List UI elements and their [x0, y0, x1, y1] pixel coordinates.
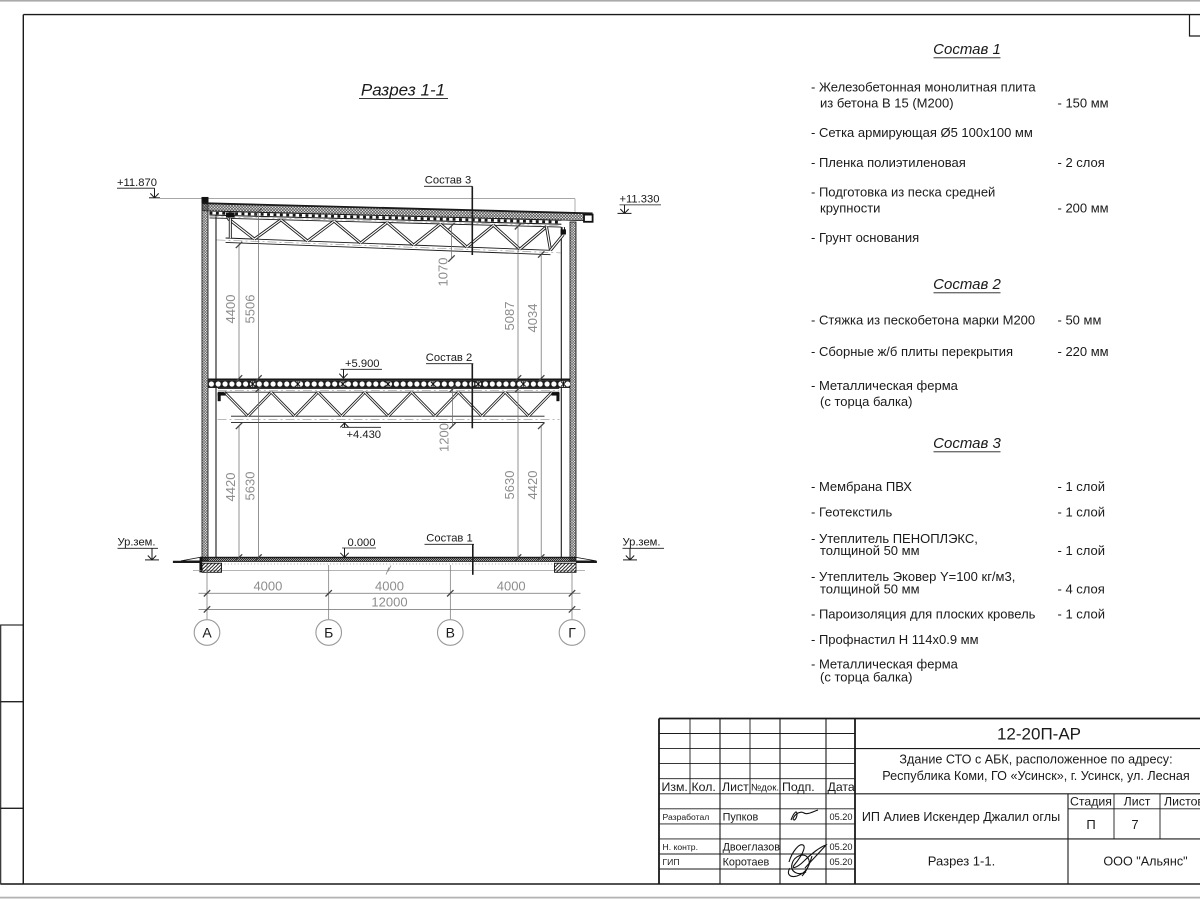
svg-text:Б: Б: [324, 625, 333, 641]
svg-text:Дата: Дата: [828, 780, 855, 794]
svg-text:Состав 3: Состав 3: [933, 435, 1001, 452]
svg-text:+11.330: +11.330: [620, 193, 660, 205]
svg-text:Состав 2: Состав 2: [426, 352, 472, 364]
svg-text:- Металлическая ферма: - Металлическая ферма: [811, 378, 959, 393]
svg-text:(с торца балка): (с торца балка): [820, 394, 913, 409]
svg-text:Состав 3: Состав 3: [425, 175, 471, 187]
svg-text:В: В: [446, 625, 455, 641]
svg-text:- 150 мм: - 150 мм: [1058, 95, 1109, 110]
svg-text:- Мембрана ПВХ: - Мембрана ПВХ: [811, 479, 912, 494]
svg-text:- Подготовка из песка средней: - Подготовка из песка средней: [811, 185, 995, 200]
svg-text:4000: 4000: [253, 579, 282, 594]
svg-text:Н. контр.: Н. контр.: [663, 842, 698, 852]
svg-text:- 4 слоя: - 4 слоя: [1058, 581, 1105, 596]
svg-text:Лист: Лист: [1124, 795, 1151, 809]
svg-text:5506: 5506: [243, 295, 258, 324]
svg-text:- 220 мм: - 220 мм: [1058, 344, 1109, 359]
svg-text:4034: 4034: [525, 304, 540, 333]
svg-text:Стадия: Стадия: [1070, 795, 1112, 809]
svg-text:Изм.: Изм.: [662, 780, 688, 794]
svg-text:0.000: 0.000: [348, 537, 376, 549]
svg-text:- Пароизоляция для плоских кро: - Пароизоляция для плоских кровель: [811, 606, 1036, 621]
svg-text:4420: 4420: [223, 473, 238, 502]
svg-text:- 1 слой: - 1 слой: [1058, 505, 1106, 520]
svg-text:+5.900: +5.900: [345, 358, 380, 370]
svg-text:ИП Алиев Искендер Джалил оглы: ИП Алиев Искендер Джалил оглы: [862, 810, 1060, 824]
svg-text:- Стяжка из пескобетона марки: - Стяжка из пескобетона марки М200: [811, 313, 1035, 328]
svg-text:Двоеглазов: Двоеглазов: [723, 842, 781, 854]
svg-text:Ур.зем.: Ур.зем.: [623, 536, 661, 548]
svg-text:12-20П-АР: 12-20П-АР: [997, 725, 1081, 744]
svg-text:05.20: 05.20: [830, 857, 853, 867]
svg-text:№док.: №док.: [751, 783, 779, 794]
svg-text:+4.430: +4.430: [347, 429, 382, 441]
svg-text:Разрез 1-1.: Разрез 1-1.: [928, 854, 995, 869]
svg-text:4000: 4000: [497, 579, 526, 594]
svg-text:- Сетка армирующая Ø5 100х100: - Сетка армирующая Ø5 100х100 мм: [811, 125, 1033, 140]
svg-text:Республика Коми, ГО «Усинск»,: Республика Коми, ГО «Усинск», г. Усинск,…: [882, 769, 1189, 783]
svg-text:- 1 слой: - 1 слой: [1058, 479, 1106, 494]
svg-text:(с торца балка): (с торца балка): [820, 670, 913, 685]
svg-text:- 2 слоя: - 2 слоя: [1058, 155, 1105, 170]
svg-text:Состав 1: Состав 1: [426, 533, 472, 545]
svg-text:Подп.: Подп.: [782, 780, 815, 794]
svg-text:А: А: [202, 625, 212, 641]
svg-text:- 200 мм: - 200 мм: [1058, 200, 1109, 215]
svg-text:Ур.зем.: Ур.зем.: [118, 536, 156, 548]
svg-text:4000: 4000: [375, 579, 404, 594]
svg-text:5630: 5630: [502, 471, 517, 500]
svg-text:из бетона В 15 (М200): из бетона В 15 (М200): [820, 95, 954, 110]
svg-text:12000: 12000: [371, 595, 407, 610]
svg-text:4420: 4420: [525, 471, 540, 500]
svg-text:Листов: Листов: [1164, 795, 1200, 809]
svg-text:- Пленка полиэтиленовая: - Пленка полиэтиленовая: [811, 155, 966, 170]
svg-text:Г: Г: [568, 625, 576, 641]
svg-text:- Геотекстиль: - Геотекстиль: [811, 505, 892, 520]
svg-text:5087: 5087: [502, 302, 517, 331]
svg-text:- Профнастил Н 114х0.9 мм: - Профнастил Н 114х0.9 мм: [811, 632, 979, 647]
svg-text:7: 7: [1131, 817, 1138, 832]
svg-text:+11.870: +11.870: [117, 177, 157, 189]
svg-text:- Сборные ж/б плиты перекрытия: - Сборные ж/б плиты перекрытия: [811, 344, 1013, 359]
svg-text:05.20: 05.20: [830, 842, 853, 852]
svg-text:ГИП: ГИП: [663, 857, 680, 867]
svg-text:Здание СТО с АБК, расположенно: Здание СТО с АБК, расположенное по адрес…: [899, 753, 1172, 767]
svg-text:Разработал: Разработал: [663, 812, 710, 822]
svg-text:Разрез 1-1: Разрез 1-1: [361, 81, 445, 100]
svg-text:Состав 1: Состав 1: [933, 41, 1001, 58]
svg-text:толщиной 50 мм: толщиной 50 мм: [820, 543, 920, 558]
svg-text:05.20: 05.20: [830, 812, 853, 822]
svg-text:- 1 слой: - 1 слой: [1058, 606, 1106, 621]
svg-text:Состав 2: Состав 2: [933, 276, 1001, 293]
svg-text:крупности: крупности: [820, 200, 880, 215]
svg-text:1070: 1070: [436, 258, 451, 287]
svg-text:1200: 1200: [437, 423, 452, 452]
svg-text:4400: 4400: [223, 295, 238, 324]
svg-text:Кол.: Кол.: [692, 780, 716, 794]
svg-text:толщиной 50 мм: толщиной 50 мм: [820, 581, 920, 596]
svg-text:- 1 слой: - 1 слой: [1058, 543, 1106, 558]
svg-text:П: П: [1086, 817, 1095, 832]
svg-text:- 50 мм: - 50 мм: [1058, 313, 1102, 328]
svg-text:- Грунт основания: - Грунт основания: [811, 230, 919, 245]
svg-text:- Железобетонная монолитная п: - Железобетонная монолитная плита: [811, 80, 1036, 95]
svg-text:Лист: Лист: [722, 780, 749, 794]
svg-text:Коротаев: Коротаев: [723, 857, 770, 869]
svg-text:Пупков: Пупков: [723, 812, 759, 824]
svg-text:5630: 5630: [243, 472, 258, 501]
svg-text:ООО "Альянс": ООО "Альянс": [1103, 855, 1187, 869]
